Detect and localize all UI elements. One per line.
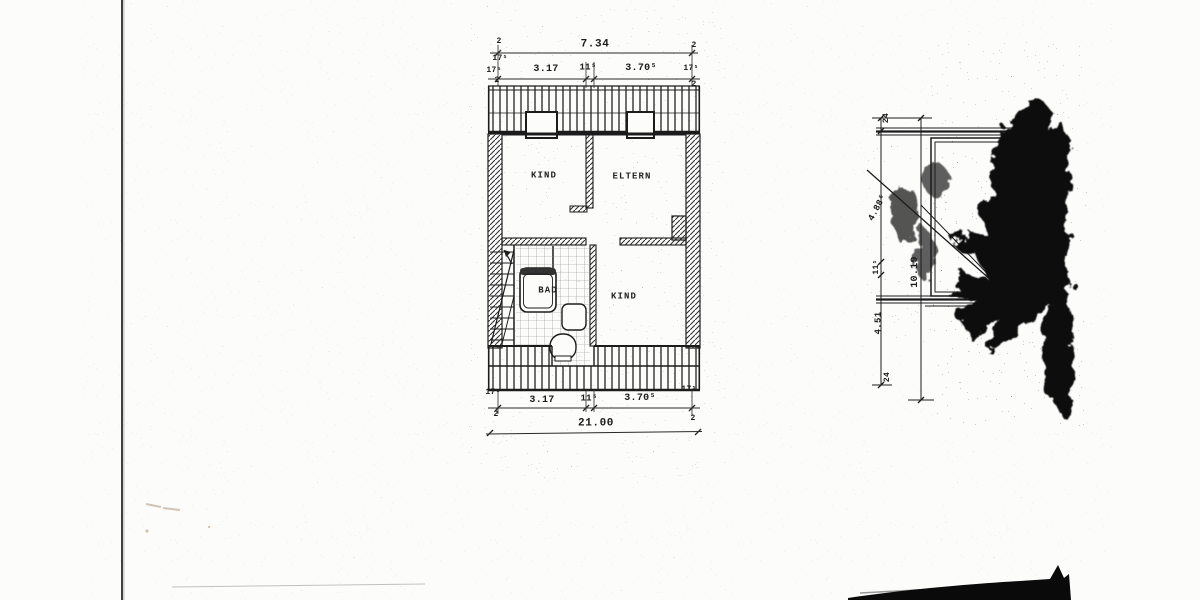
side-dim-seg-mid: 11⁵ xyxy=(873,259,881,274)
room-label-bad: BAD xyxy=(538,287,558,296)
side-dim-seg-lower: 4.51 xyxy=(875,312,884,335)
dim-bottom-seg-mid: 11⁵ xyxy=(580,395,597,404)
dim-top-seg-left: 3.17 xyxy=(533,65,558,75)
sink-symbol xyxy=(562,304,586,330)
dim-top-seg-mid: 11⁵ xyxy=(579,64,596,73)
bottom-balcony-railing xyxy=(488,346,700,390)
room-label-kind-top: KIND xyxy=(531,172,557,181)
dim-top-tick-left: 2 xyxy=(496,38,501,46)
room-label-kind-bottom: KIND xyxy=(611,293,637,302)
floor-plan-drawing xyxy=(0,0,1200,600)
side-dim-tick-bottom: 24 xyxy=(884,372,892,382)
dim-top-edge-left-a: 17⁵ xyxy=(492,55,507,63)
dim-top-tick-right: 2 xyxy=(691,42,696,50)
scanned-floor-plan-page: 7.34 2 2 3.17 11⁵ 3.70⁵ 17⁵ 17⁵ 2 17⁵ 2 … xyxy=(0,0,1200,600)
dim-top-edge-left-c: 2 xyxy=(494,77,499,85)
dim-bottom-seg-right: 3.70⁵ xyxy=(624,394,656,404)
dim-top-seg-right: 3.70⁵ xyxy=(625,64,657,74)
dim-bottom-total: 21.00 xyxy=(578,419,614,430)
dim-bottom-edge-left-a: 17⁵ xyxy=(485,389,500,397)
dim-top-edge-right-b: 2 xyxy=(691,81,696,89)
chimney-shaft xyxy=(672,216,686,240)
side-dim-total: 10.19 xyxy=(911,256,921,288)
dim-top-edge-left-b: 17⁵ xyxy=(486,67,501,75)
top-balcony-railing xyxy=(488,86,700,138)
dim-bottom-edge-right-b: 2 xyxy=(690,415,695,423)
dim-top-total: 7.34 xyxy=(581,40,610,51)
side-dim-tick-top: 24 xyxy=(883,113,891,123)
toilet-symbol xyxy=(550,334,576,361)
page-edge-line xyxy=(121,0,125,600)
dim-bottom-seg-left: 3.17 xyxy=(529,396,554,406)
dim-bottom-edge-left-b: 2 xyxy=(493,411,498,419)
room-label-eltern: ELTERN xyxy=(612,173,651,182)
dim-bottom-edge-right-a: 17⁵ xyxy=(681,386,696,394)
dim-top-edge-right-a: 17⁵ xyxy=(683,65,698,73)
